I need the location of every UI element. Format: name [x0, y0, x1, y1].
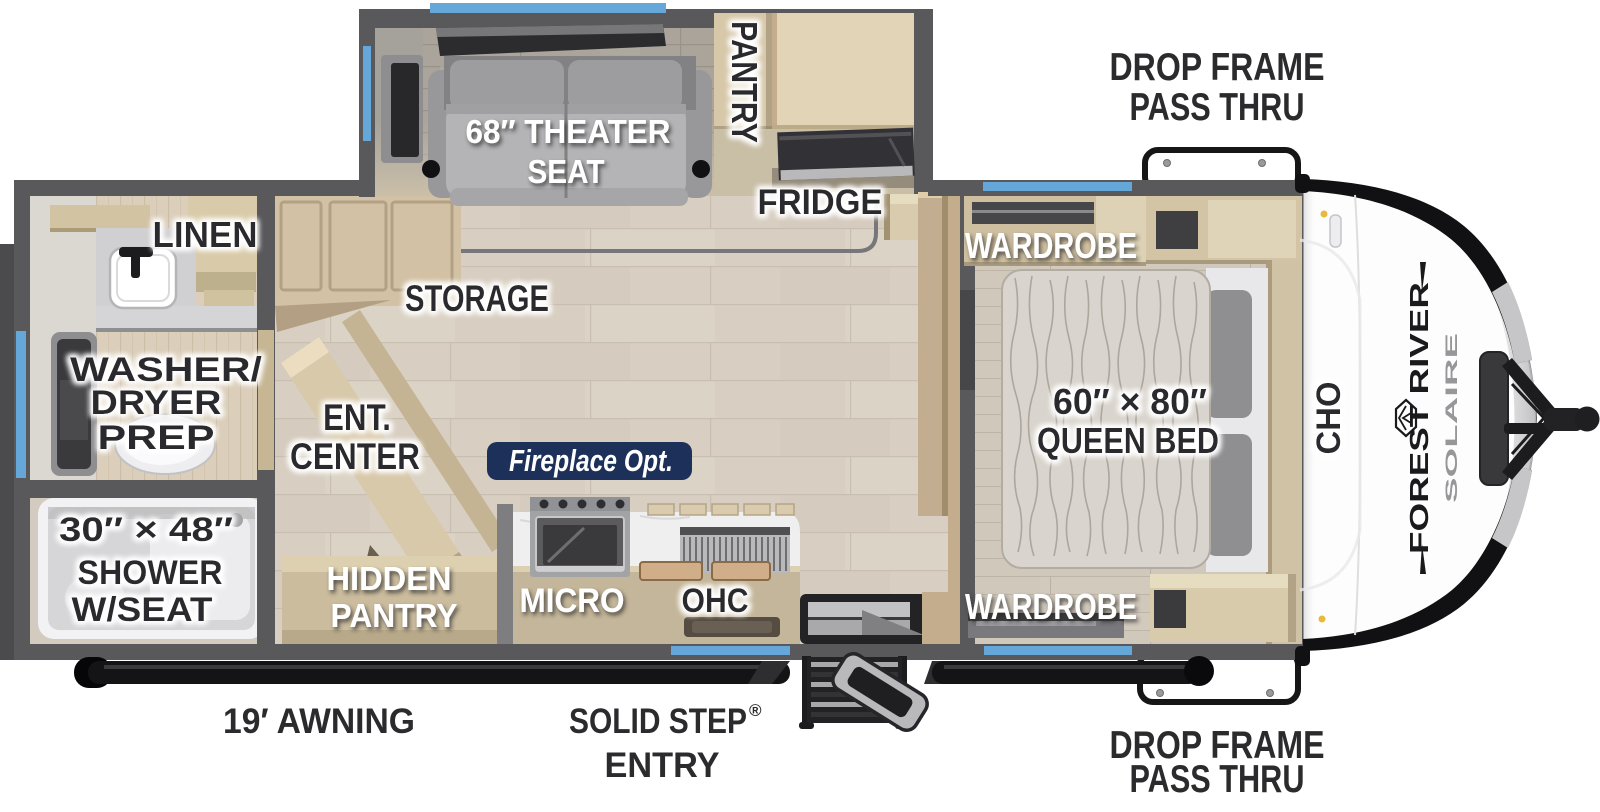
svg-text:®: ® [749, 701, 762, 720]
svg-text:DROP FRAME: DROP FRAME [1110, 46, 1325, 89]
svg-text:MICRO: MICRO [520, 582, 625, 620]
svg-text:60″ × 80″: 60″ × 80″ [1053, 381, 1207, 422]
svg-text:ENT.: ENT. [323, 397, 391, 438]
svg-text:68″ THEATER: 68″ THEATER [466, 113, 671, 150]
svg-text:PANTRY: PANTRY [724, 21, 765, 143]
svg-text:30″ × 48″: 30″ × 48″ [59, 511, 233, 549]
svg-text:CENTER: CENTER [290, 436, 420, 477]
svg-text:WARDROBE: WARDROBE [965, 225, 1137, 266]
svg-text:19′ AWNING: 19′ AWNING [223, 702, 415, 741]
svg-text:SHOWER: SHOWER [78, 554, 223, 592]
svg-text:HIDDEN: HIDDEN [327, 560, 452, 597]
svg-text:QUEEN BED: QUEEN BED [1037, 420, 1219, 461]
svg-text:SOLAIRE: SOLAIRE [1442, 333, 1461, 503]
svg-text:SOLID STEP: SOLID STEP [569, 702, 747, 741]
svg-text:CHO: CHO [1310, 382, 1348, 455]
svg-text:LINEN: LINEN [153, 214, 258, 255]
svg-text:PREP: PREP [98, 419, 215, 457]
svg-text:PASS THRU: PASS THRU [1130, 758, 1305, 801]
svg-text:SEAT: SEAT [528, 153, 605, 190]
svg-text:ENTRY: ENTRY [605, 746, 720, 785]
svg-text:STORAGE: STORAGE [405, 278, 549, 319]
svg-text:WARDROBE: WARDROBE [965, 586, 1137, 627]
svg-text:OHC: OHC [682, 582, 749, 620]
svg-text:FRIDGE: FRIDGE [758, 183, 883, 222]
svg-text:PASS THRU: PASS THRU [1130, 86, 1305, 129]
svg-text:DRYER: DRYER [91, 384, 222, 422]
svg-text:W/SEAT: W/SEAT [72, 591, 213, 629]
svg-text:FOREST RIVER: FOREST RIVER [1404, 282, 1434, 554]
svg-text:PANTRY: PANTRY [331, 597, 458, 634]
svg-text:Fireplace Opt.: Fireplace Opt. [509, 443, 673, 478]
